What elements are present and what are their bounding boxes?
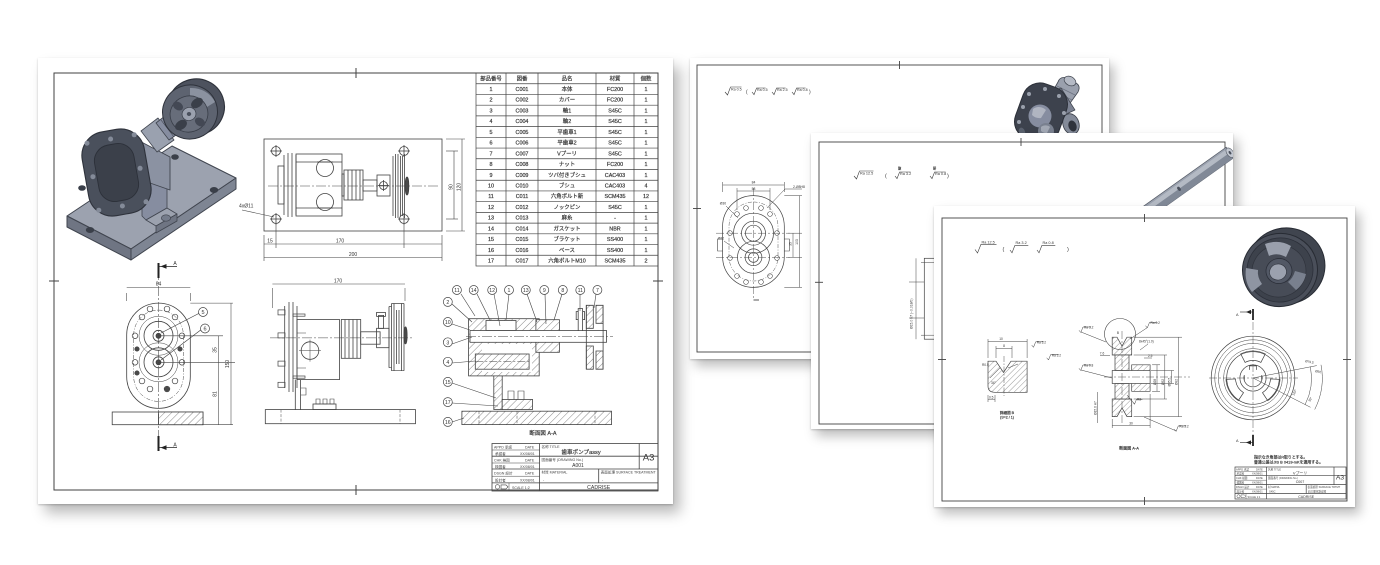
svg-text:CADRISE: CADRISE — [587, 485, 611, 491]
svg-text:SS400: SS400 — [607, 248, 623, 254]
svg-text:SCM435: SCM435 — [605, 259, 626, 265]
svg-text:S45C: S45C — [608, 108, 622, 114]
svg-text:120: 120 — [457, 183, 463, 192]
svg-text:S45C: S45C — [608, 205, 622, 211]
svg-text:DATE: DATE — [1256, 467, 1263, 471]
svg-text:ガスケット: ガスケット — [554, 224, 581, 232]
svg-text:17: 17 — [445, 400, 451, 406]
svg-text:C011: C011 — [516, 194, 529, 200]
svg-text:8: 8 — [490, 162, 493, 168]
svg-text:Ø92: Ø92 — [1315, 369, 1322, 374]
svg-text:軸2: 軸2 — [563, 117, 571, 125]
svg-text:7: 7 — [490, 151, 493, 157]
svg-text:C010: C010 — [516, 183, 529, 189]
svg-text:1: 1 — [645, 237, 648, 243]
svg-text:1: 1 — [645, 119, 648, 125]
svg-text:Ø15.0 H7: Ø15.0 H7 — [1094, 401, 1098, 415]
svg-text:35: 35 — [789, 242, 793, 246]
svg-text:15: 15 — [445, 380, 451, 386]
svg-text:34°: 34° — [991, 381, 997, 385]
svg-text:表面処理 SURFACE TRTMT: 表面処理 SURFACE TRTMT — [1308, 485, 1341, 489]
svg-text:Ra 3.2: Ra 3.2 — [1179, 424, 1189, 428]
svg-text:3: 3 — [446, 340, 449, 346]
svg-text:(S=2 / 1): (S=2 / 1) — [1000, 416, 1014, 420]
svg-text:軸1: 軸1 — [563, 106, 571, 114]
svg-text:5: 5 — [201, 310, 204, 316]
svg-text:(: ( — [1003, 247, 1005, 253]
svg-text:3: 3 — [490, 108, 493, 114]
svg-text:Ra 3.2: Ra 3.2 — [900, 172, 911, 176]
svg-text:部品番号: 部品番号 — [480, 74, 502, 82]
svg-text:APPD 承認: APPD 承認 — [1236, 467, 1249, 471]
svg-text:Ra 0.8: Ra 0.8 — [1043, 241, 1054, 245]
svg-text:麻糸: 麻糸 — [562, 214, 573, 222]
svg-text:): ) — [947, 174, 949, 180]
svg-text:カバー: カバー — [559, 97, 575, 104]
svg-text:A: A — [1236, 439, 1239, 443]
svg-text:Ra 3.2: Ra 3.2 — [1052, 353, 1062, 357]
svg-text:103: 103 — [795, 239, 799, 245]
svg-text:断面図 A-A: 断面図 A-A — [1119, 445, 1139, 451]
svg-text:16: 16 — [445, 420, 451, 426]
svg-text:6: 6 — [203, 327, 206, 333]
svg-text:C015: C015 — [516, 237, 529, 243]
svg-text:90: 90 — [449, 184, 455, 190]
svg-text:検図者: 検図者 — [495, 464, 506, 469]
svg-text:ブラケット: ブラケット — [554, 235, 581, 243]
svg-text:DATE: DATE — [525, 445, 535, 449]
svg-text:4: 4 — [645, 183, 648, 189]
svg-text:11: 11 — [578, 288, 583, 294]
svg-text:C016: C016 — [516, 248, 529, 254]
svg-text:Ra 0.8: Ra 0.8 — [797, 88, 808, 92]
svg-text:10: 10 — [999, 337, 1003, 341]
svg-text:(: ( — [746, 90, 748, 96]
svg-text:C003: C003 — [516, 108, 529, 114]
svg-text:S45C: S45C — [608, 141, 622, 147]
svg-text:10: 10 — [488, 183, 494, 189]
svg-text:XX/08/01: XX/08/01 — [520, 478, 535, 482]
svg-text:XX/08/01: XX/08/01 — [1252, 472, 1263, 476]
svg-text:Ø28: Ø28 — [1153, 379, 1157, 385]
svg-text:200: 200 — [349, 252, 358, 258]
svg-text:C004: C004 — [516, 119, 529, 125]
svg-text:2: 2 — [645, 259, 648, 265]
svg-text:2-Ø8H8: 2-Ø8H8 — [793, 185, 805, 189]
svg-text:歯車ポンプassy: 歯車ポンプassy — [561, 448, 601, 456]
svg-text:XX/08/01: XX/08/01 — [1252, 481, 1263, 485]
svg-text:C007: C007 — [1296, 480, 1305, 484]
svg-text:R0.5: R0.5 — [982, 363, 989, 367]
svg-text:材 MATRL: 材 MATRL — [1268, 485, 1280, 489]
svg-text:1: 1 — [645, 130, 648, 136]
svg-text:材質: 材質 — [610, 74, 621, 82]
svg-text:12: 12 — [488, 205, 494, 211]
svg-text:DATE: DATE — [1256, 476, 1263, 480]
svg-text:断面図 A-A: 断面図 A-A — [529, 429, 557, 437]
svg-text:C017: C017 — [516, 259, 529, 265]
svg-text:FC200: FC200 — [607, 98, 623, 104]
svg-text:-: - — [614, 216, 616, 222]
svg-text:C007: C007 — [516, 151, 529, 157]
svg-text:図面番号 (DRAWING No.): 図面番号 (DRAWING No.) — [542, 457, 584, 462]
svg-text:C002: C002 — [516, 98, 529, 104]
svg-text:4: 4 — [446, 360, 449, 366]
svg-text:13: 13 — [523, 288, 529, 294]
svg-text:Ø92: Ø92 — [1175, 379, 1179, 385]
svg-text:6: 6 — [490, 141, 493, 147]
svg-text:14: 14 — [471, 288, 477, 294]
svg-text:品名: 品名 — [562, 74, 573, 82]
svg-text:1: 1 — [508, 288, 511, 294]
svg-text:170: 170 — [334, 279, 343, 285]
svg-text:検図者: 検図者 — [1237, 481, 1245, 485]
svg-text:C009: C009 — [516, 173, 529, 179]
svg-text:A3: A3 — [643, 452, 655, 463]
svg-text:12: 12 — [643, 194, 649, 200]
svg-text:四三酸化鉄皮膜: 四三酸化鉄皮膜 — [1308, 490, 1327, 494]
svg-text:-: - — [602, 478, 604, 482]
svg-text:7.6: 7.6 — [1100, 352, 1105, 356]
svg-text:-: - — [543, 478, 545, 482]
svg-text:Ra 3.2: Ra 3.2 — [1037, 341, 1047, 345]
svg-text:DSGN 設計: DSGN 設計 — [1236, 485, 1250, 489]
svg-text:17: 17 — [488, 259, 494, 265]
svg-text:150: 150 — [225, 360, 231, 369]
svg-text:1: 1 — [645, 87, 648, 93]
svg-text:1: 1 — [645, 226, 648, 232]
svg-text:ツバ付きブシュ: ツバ付きブシュ — [548, 171, 586, 179]
svg-text:1: 1 — [645, 108, 648, 114]
svg-text:詳細図 B: 詳細図 B — [1000, 410, 1015, 415]
svg-text:1: 1 — [490, 87, 493, 93]
svg-text:名称 TITLE: 名称 TITLE — [1268, 467, 1281, 471]
svg-text:普通公差はJIS B 0419-mKを適用する。: 普通公差はJIS B 0419-mKを適用する。 — [1254, 460, 1323, 465]
svg-text:S45C: S45C — [608, 119, 622, 125]
svg-text:9: 9 — [490, 173, 493, 179]
svg-text:2.5: 2.5 — [1148, 354, 1153, 358]
svg-text:Ra 3.2: Ra 3.2 — [1016, 241, 1027, 245]
svg-text:CHK 検図: CHK 検図 — [494, 457, 510, 462]
svg-text:8: 8 — [1003, 344, 1005, 348]
svg-text:C005: C005 — [516, 130, 529, 136]
svg-text:CHK 検図: CHK 検図 — [1236, 476, 1248, 480]
svg-text:1: 1 — [645, 216, 648, 222]
svg-text:35: 35 — [213, 347, 219, 353]
svg-text:5: 5 — [490, 130, 493, 136]
svg-text:旋: 旋 — [898, 166, 902, 171]
svg-text:120°: 120° — [1291, 388, 1298, 396]
svg-text:1: 1 — [645, 162, 648, 168]
svg-text:研: 研 — [933, 167, 937, 171]
svg-text:11: 11 — [454, 288, 459, 294]
svg-text:SCALE 1:1: SCALE 1:1 — [1248, 495, 1261, 499]
svg-text:(: ( — [885, 174, 887, 180]
svg-text:Ra 12.5: Ra 12.5 — [860, 171, 873, 175]
svg-text:Ra 0.5: Ra 0.5 — [757, 88, 768, 92]
svg-text:58: 58 — [752, 187, 756, 191]
svg-text:16: 16 — [488, 248, 494, 254]
svg-text:XX/08/01: XX/08/01 — [520, 465, 535, 469]
svg-text:A001: A001 — [572, 463, 584, 469]
svg-text:4: 4 — [490, 119, 493, 125]
svg-text:C014: C014 — [516, 226, 529, 232]
svg-text:A: A — [1236, 313, 1239, 317]
svg-text:C012: C012 — [516, 205, 529, 211]
svg-text:81: 81 — [213, 391, 219, 397]
svg-text:Ra 12.5: Ra 12.5 — [982, 241, 995, 245]
svg-text:FC200: FC200 — [607, 162, 623, 168]
svg-text:12: 12 — [489, 288, 495, 294]
svg-text:S45C: S45C — [608, 151, 622, 157]
svg-text:15: 15 — [267, 239, 273, 245]
svg-text:Ø52: Ø52 — [1161, 379, 1165, 385]
svg-text:10: 10 — [445, 320, 451, 326]
svg-text:9: 9 — [543, 288, 546, 294]
svg-text:11: 11 — [488, 194, 494, 200]
svg-text:Ra 3.2: Ra 3.2 — [1084, 326, 1094, 330]
svg-text:B: B — [1117, 331, 1119, 335]
svg-text:SS400: SS400 — [607, 237, 623, 243]
svg-text:図面番号 (DRAWING No.): 図面番号 (DRAWING No.) — [1268, 476, 1298, 480]
svg-text:Ø79.5: Ø79.5 — [1305, 359, 1315, 365]
svg-text:DATE: DATE — [1256, 485, 1263, 489]
svg-text:承認者: 承認者 — [495, 451, 506, 456]
svg-text:84: 84 — [156, 282, 162, 288]
svg-text:DSGN 設計: DSGN 設計 — [494, 471, 513, 476]
svg-text:2: 2 — [490, 98, 493, 104]
svg-text:六角ボルトM10: 六角ボルトM10 — [548, 257, 585, 265]
svg-text:ナット: ナット — [559, 161, 575, 168]
svg-text:170: 170 — [336, 239, 345, 245]
svg-text:14: 14 — [488, 226, 494, 232]
svg-text:Ra 0.8: Ra 0.8 — [1084, 364, 1094, 368]
svg-text:Ra 0.5: Ra 0.5 — [731, 88, 742, 92]
svg-text:設計者: 設計者 — [495, 477, 506, 482]
svg-text:Vプーリ: Vプーリ — [557, 150, 577, 157]
svg-text:材質 MATERIAL: 材質 MATERIAL — [542, 470, 568, 475]
svg-text:4xØ11: 4xØ11 — [239, 204, 254, 210]
svg-text:DATE: DATE — [525, 458, 535, 462]
svg-text:NBR: NBR — [609, 226, 620, 232]
svg-text:S45C: S45C — [608, 130, 622, 136]
svg-text:C006: C006 — [516, 141, 529, 147]
svg-text:8: 8 — [561, 288, 564, 294]
svg-text:8x45°(1.0): 8x45°(1.0) — [1139, 339, 1154, 343]
svg-text:ブシュ: ブシュ — [559, 181, 575, 189]
svg-text:ベース: ベース — [559, 247, 575, 254]
svg-text:1: 1 — [645, 248, 648, 254]
svg-text:Ra 2.5: Ra 2.5 — [777, 88, 788, 92]
svg-text:Ra 0.8: Ra 0.8 — [935, 172, 946, 176]
svg-text:CADRISE: CADRISE — [1298, 495, 1315, 499]
svg-text:CAC403: CAC403 — [605, 173, 625, 179]
svg-text:Ra 0.2: Ra 0.2 — [1151, 321, 1161, 325]
svg-text:S45C: S45C — [1269, 490, 1276, 494]
svg-text:15: 15 — [488, 237, 494, 243]
svg-text:CAC403: CAC403 — [605, 183, 625, 189]
svg-text:DATE: DATE — [525, 472, 535, 476]
svg-text:1: 1 — [645, 98, 648, 104]
svg-text:XX/08/01: XX/08/01 — [520, 452, 535, 456]
svg-text:平歯車1: 平歯車1 — [557, 128, 576, 136]
svg-text:C008: C008 — [516, 162, 529, 168]
svg-text:Ø15.0 h7 (−0.018/0): Ø15.0 h7 (−0.018/0) — [910, 299, 914, 329]
svg-text:7: 7 — [596, 288, 599, 294]
svg-text:表面処理 SURFACE TREATMENT: 表面処理 SURFACE TREATMENT — [601, 470, 657, 475]
svg-text:六角ボルト新: 六角ボルト新 — [551, 192, 584, 200]
svg-text:本体: 本体 — [562, 85, 573, 93]
svg-text:図番: 図番 — [517, 75, 528, 82]
svg-text:C001: C001 — [516, 87, 529, 93]
svg-text:SCM435: SCM435 — [605, 194, 626, 200]
svg-text:): ) — [809, 90, 811, 96]
svg-text:APPD 承認: APPD 承認 — [494, 444, 512, 449]
svg-text:1: 1 — [645, 141, 648, 147]
svg-text:1: 1 — [645, 173, 648, 179]
svg-text:設計者: 設計者 — [1237, 490, 1245, 494]
svg-text:FC200: FC200 — [607, 87, 623, 93]
svg-text:0.5: 0.5 — [989, 395, 994, 399]
svg-text:): ) — [1067, 247, 1069, 253]
svg-text:A3: A3 — [1336, 474, 1345, 481]
svg-text:2: 2 — [446, 300, 449, 306]
svg-text:R3: R3 — [1137, 398, 1141, 402]
svg-text:XX/08/01: XX/08/01 — [1252, 490, 1263, 494]
svg-text:C013: C013 — [516, 216, 529, 222]
svg-text:ノックピン: ノックピン — [554, 204, 581, 211]
svg-text:平歯車2: 平歯車2 — [557, 139, 576, 147]
svg-text:SCALE 1:2: SCALE 1:2 — [512, 486, 530, 490]
svg-text:1: 1 — [645, 151, 648, 157]
svg-text:1: 1 — [645, 205, 648, 211]
svg-text:13: 13 — [488, 216, 494, 222]
svg-text:84: 84 — [752, 181, 756, 185]
svg-text:Vプーリ: Vプーリ — [1293, 470, 1307, 475]
svg-text:承認者: 承認者 — [1237, 472, 1245, 476]
svg-text:個数: 個数 — [641, 74, 652, 82]
svg-text:Ø35.5: Ø35.5 — [1168, 377, 1172, 386]
svg-text:30: 30 — [1129, 422, 1133, 426]
svg-text:Ø22: Ø22 — [718, 237, 725, 241]
svg-text:名称 TITLE: 名称 TITLE — [542, 444, 561, 449]
svg-text:Ø30: Ø30 — [720, 202, 727, 206]
